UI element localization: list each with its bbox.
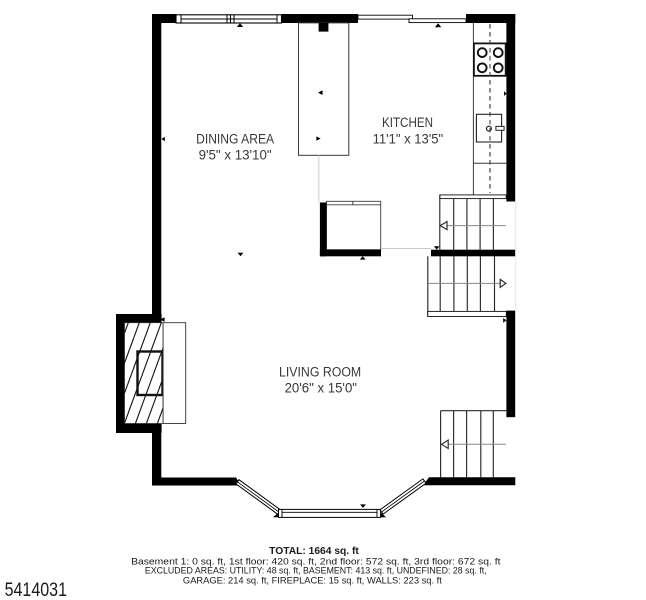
svg-text:KITCHEN: KITCHEN xyxy=(382,115,433,130)
svg-text:GARAGE: 214 sq. ft, FIREPLACE:: GARAGE: 214 sq. ft, FIREPLACE: 15 sq. ft… xyxy=(183,575,442,585)
svg-text:5414031: 5414031 xyxy=(5,579,67,600)
svg-text:20'6" x 15'0": 20'6" x 15'0" xyxy=(285,380,358,395)
svg-text:DINING AREA: DINING AREA xyxy=(196,131,274,146)
svg-text:LIVING ROOM: LIVING ROOM xyxy=(279,364,361,379)
svg-text:EXCLUDED AREAS: UTILITY: 48 sq: EXCLUDED AREAS: UTILITY: 48 sq. ft, BASE… xyxy=(145,565,487,575)
svg-text:11'1" x 13'5": 11'1" x 13'5" xyxy=(373,131,444,146)
svg-text:9'5" x 13'10": 9'5" x 13'10" xyxy=(199,147,272,162)
